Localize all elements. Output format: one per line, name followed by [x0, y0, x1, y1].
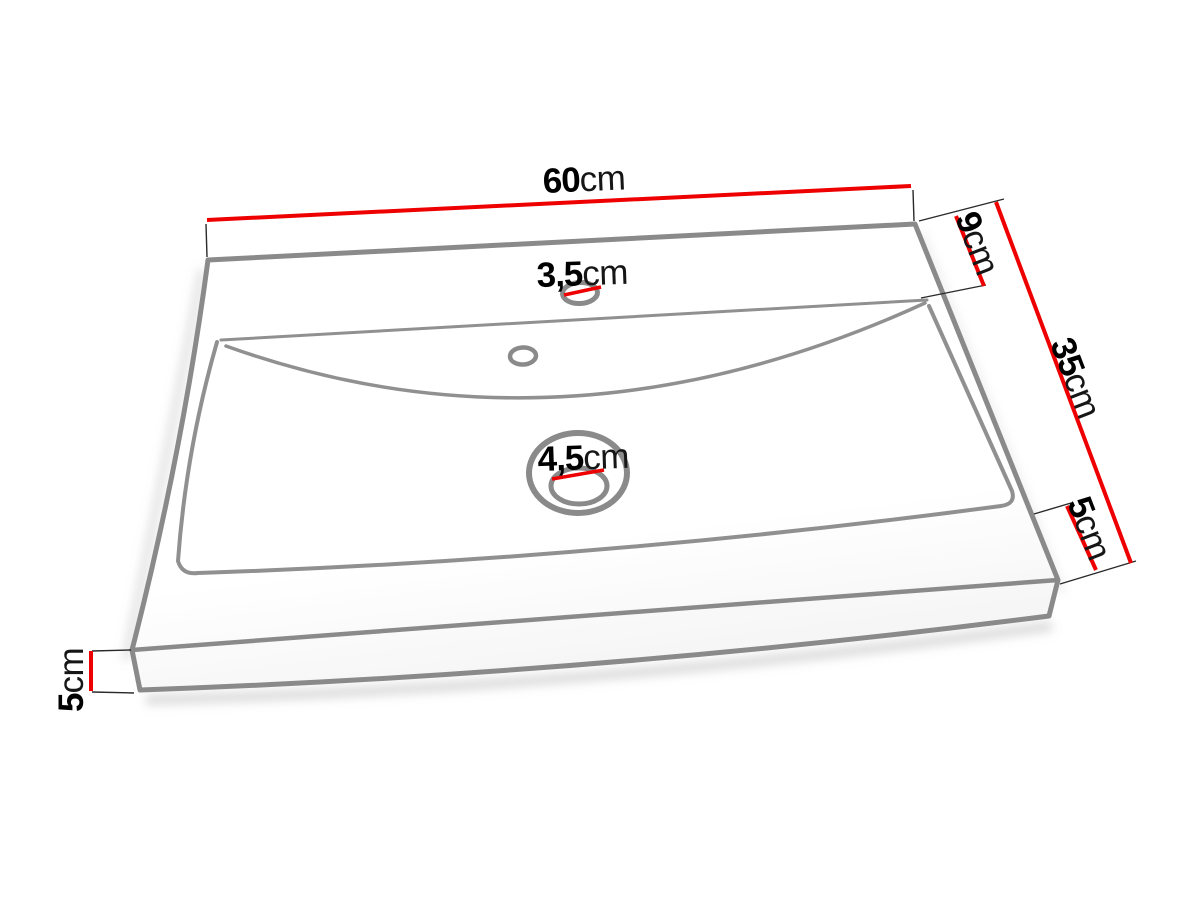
dimension-label-faucet-hole: 3,5cm: [536, 255, 628, 293]
dimension-label-overall-width: 60cm: [542, 160, 626, 199]
dimension-unit: cm: [52, 648, 91, 694]
ext-front-bottom: [1060, 561, 1136, 584]
ext-width-left: [206, 224, 207, 257]
dimension-value: 5: [52, 694, 91, 712]
dimension-label-edge-height: 5cm: [54, 648, 89, 712]
ext-height-top: [92, 650, 131, 651]
dimension-label-drain-hole: 4,5cm: [537, 439, 629, 477]
dimension-unit: cm: [579, 158, 626, 199]
dimension-value: 4,5: [537, 438, 584, 479]
ext-width-right: [913, 190, 914, 221]
dimension-unit: cm: [583, 437, 630, 478]
ext-height-bottom: [92, 692, 134, 693]
dimension-unit: cm: [582, 253, 629, 294]
dimension-value: 60: [542, 160, 581, 201]
dimension-value: 3,5: [536, 254, 583, 295]
washbasin-dimension-diagram: 60cm 3,5cm 4,5cm 9cm 35cm 5cm 5cm: [0, 0, 1200, 900]
